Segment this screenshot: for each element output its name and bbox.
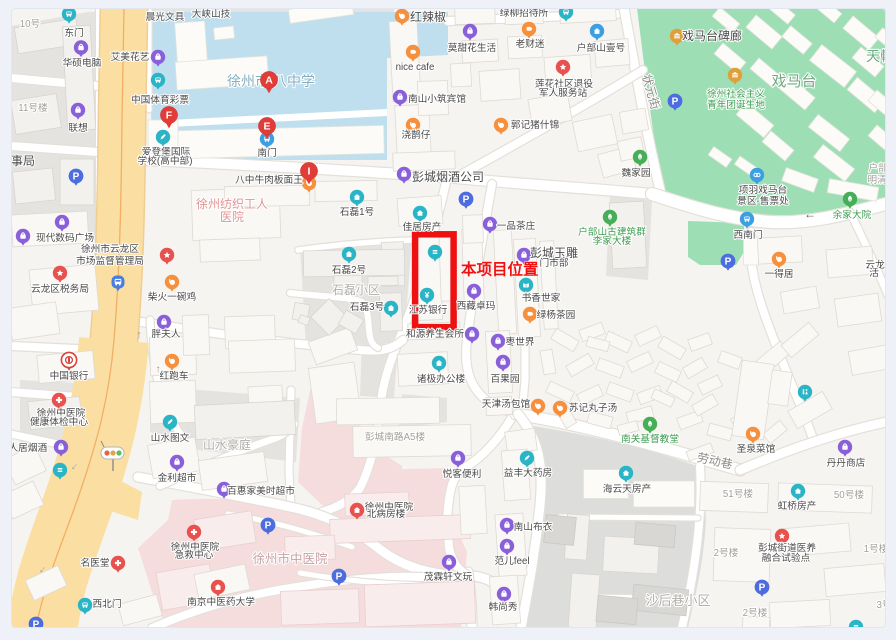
svg-text:¥: ¥ xyxy=(425,290,430,300)
svg-text:绿杨茶园: 绿杨茶园 xyxy=(537,308,576,321)
svg-text:P: P xyxy=(725,257,732,268)
svg-text:E: E xyxy=(263,121,270,133)
svg-text:1号楼: 1号楼 xyxy=(864,542,889,555)
svg-text:↑: ↑ xyxy=(136,329,142,341)
svg-text:石磊2号: 石磊2号 xyxy=(332,264,367,276)
svg-text:范儿feel: 范儿feel xyxy=(495,554,530,567)
svg-text:戏马台碑廊: 戏马台碑廊 xyxy=(682,28,742,43)
svg-text:←: ← xyxy=(804,207,816,221)
svg-text:一得居: 一得居 xyxy=(764,268,793,280)
svg-text:东门: 东门 xyxy=(64,26,83,39)
svg-text:P: P xyxy=(73,172,80,183)
svg-text:名医堂: 名医堂 xyxy=(80,556,109,569)
svg-text:石磊3号: 石磊3号 xyxy=(350,301,385,313)
svg-text:天津汤包馆: 天津汤包馆 xyxy=(482,397,531,410)
svg-text:军人服务站: 军人服务站 xyxy=(539,86,588,99)
svg-text:11号楼: 11号楼 xyxy=(18,101,48,114)
svg-text:西北门: 西北门 xyxy=(92,597,121,610)
svg-text:P: P xyxy=(265,521,272,532)
svg-text:A: A xyxy=(265,75,273,87)
svg-text:景区-售票处: 景区-售票处 xyxy=(737,194,789,207)
svg-text:本项目位置: 本项目位置 xyxy=(461,260,539,279)
svg-text:江苏银行: 江苏银行 xyxy=(409,303,448,316)
svg-text:徐州纺织工人: 徐州纺织工人 xyxy=(196,196,268,211)
svg-text:融合试验点: 融合试验点 xyxy=(762,551,811,564)
svg-text:石磊小区: 石磊小区 xyxy=(332,283,380,297)
svg-text:韩尚秀: 韩尚秀 xyxy=(488,600,517,613)
svg-text:医院: 医院 xyxy=(220,210,244,224)
svg-text:百果园: 百果园 xyxy=(490,373,519,385)
svg-text:沙后巷小区: 沙后巷小区 xyxy=(645,593,710,608)
svg-text:悦客便利: 悦客便利 xyxy=(443,467,482,480)
svg-text:中国体育彩票: 中国体育彩票 xyxy=(131,93,189,106)
svg-text:胖夫人: 胖夫人 xyxy=(151,328,180,340)
svg-text:现代数码广场: 现代数码广场 xyxy=(36,231,94,244)
svg-text:户部山壹号: 户部山壹号 xyxy=(577,41,626,54)
svg-text:青年团诞生地: 青年团诞生地 xyxy=(707,98,765,111)
svg-text:活: 活 xyxy=(869,267,879,279)
svg-text:南山布衣: 南山布衣 xyxy=(514,520,553,533)
svg-text:云龙区税务局: 云龙区税务局 xyxy=(31,282,89,295)
svg-text:莫甜花生活: 莫甜花生活 xyxy=(448,41,497,54)
svg-text:金利超市: 金利超市 xyxy=(158,471,197,484)
svg-text:余家大院: 余家大院 xyxy=(833,208,872,221)
svg-text:50号楼: 50号楼 xyxy=(834,488,864,501)
svg-text:山水图文: 山水图文 xyxy=(151,431,190,444)
svg-text:石磊1号: 石磊1号 xyxy=(340,206,375,218)
svg-text:虹桥房产: 虹桥房产 xyxy=(778,499,817,512)
svg-text:红跑车: 红跑车 xyxy=(159,369,188,382)
svg-text:和源养生会所: 和源养生会所 xyxy=(406,327,464,340)
svg-text:10号: 10号 xyxy=(20,18,41,30)
svg-text:P: P xyxy=(336,572,343,583)
svg-text:南关基督教堂: 南关基督教堂 xyxy=(621,432,679,445)
svg-text:51号楼: 51号楼 xyxy=(723,487,753,500)
svg-text:市场监督管理局: 市场监督管理局 xyxy=(76,254,144,267)
svg-text:艾美花艺: 艾美花艺 xyxy=(111,50,150,63)
svg-text:浇鹊仔: 浇鹊仔 xyxy=(401,128,430,141)
svg-text:明清: 明清 xyxy=(867,173,887,186)
svg-text:2号楼: 2号楼 xyxy=(714,546,739,559)
svg-text:nice cafe: nice cafe xyxy=(396,62,435,73)
svg-text:郭记猪什锦: 郭记猪什锦 xyxy=(511,118,559,131)
svg-text:彭城南路A5楼: 彭城南路A5楼 xyxy=(365,430,426,443)
svg-text:徐州市中医院: 徐州市中医院 xyxy=(252,551,328,566)
svg-text:枣世界: 枣世界 xyxy=(505,336,534,348)
svg-text:李家大楼: 李家大楼 xyxy=(593,234,632,247)
svg-text:佳居房产: 佳居房产 xyxy=(403,220,442,233)
svg-text:P: P xyxy=(672,97,679,108)
svg-text:门市部: 门市部 xyxy=(539,256,568,269)
svg-text:北病房楼: 北病房楼 xyxy=(367,507,406,520)
svg-text:彭城烟酒公司: 彭城烟酒公司 xyxy=(412,170,484,184)
svg-text:徐州市云龙区: 徐州市云龙区 xyxy=(81,242,139,255)
svg-text:圣泉菜馆: 圣泉菜馆 xyxy=(737,442,776,455)
svg-text:诸极办公楼: 诸极办公楼 xyxy=(417,372,466,385)
svg-text:中国银行: 中国银行 xyxy=(50,369,89,382)
svg-text:百惠家美时超市: 百惠家美时超市 xyxy=(227,484,295,497)
svg-text:丹丹商店: 丹丹商店 xyxy=(827,456,866,469)
svg-text:西藏卓玛: 西藏卓玛 xyxy=(457,300,496,312)
svg-text:健康体检中心: 健康体检中心 xyxy=(30,415,88,428)
svg-text:徐州社会主义: 徐州社会主义 xyxy=(707,87,765,100)
svg-text:急救中心: 急救中心 xyxy=(175,548,214,561)
svg-text:老财迷: 老财迷 xyxy=(515,37,544,50)
svg-text:I: I xyxy=(308,166,311,178)
svg-text:益丰大药房: 益丰大药房 xyxy=(504,466,552,479)
svg-text:南京中医药大学: 南京中医药大学 xyxy=(187,595,255,608)
svg-text:联想: 联想 xyxy=(68,121,88,134)
svg-text:F: F xyxy=(166,110,173,122)
svg-text:柴火一碗鸡: 柴火一碗鸡 xyxy=(148,290,197,303)
svg-text:苏记丸子汤: 苏记丸子汤 xyxy=(569,401,618,414)
svg-text:南门: 南门 xyxy=(257,146,276,159)
svg-text:八中牛肉板面王: 八中牛肉板面王 xyxy=(235,173,303,186)
svg-text:八中学: 八中学 xyxy=(273,73,315,89)
svg-text:P: P xyxy=(759,583,766,594)
svg-text:项羽戏马台: 项羽戏马台 xyxy=(739,183,787,196)
svg-text:海云天房产: 海云天房产 xyxy=(603,482,651,495)
svg-text:山水豪庭: 山水豪庭 xyxy=(203,437,251,452)
svg-text:P: P xyxy=(463,195,470,206)
svg-text:晨光文具: 晨光文具 xyxy=(146,10,185,23)
svg-text:华硕电脑: 华硕电脑 xyxy=(63,56,102,69)
svg-text:2号楼: 2号楼 xyxy=(743,606,768,619)
svg-text:一品茶庄: 一品茶庄 xyxy=(497,219,536,232)
svg-text:书香世家: 书香世家 xyxy=(522,291,561,304)
svg-text:红辣椒: 红辣椒 xyxy=(410,9,446,24)
svg-text:南山小筑宾馆: 南山小筑宾馆 xyxy=(408,92,466,105)
svg-text:魏家园: 魏家园 xyxy=(621,166,650,179)
svg-text:学校(高中部): 学校(高中部) xyxy=(138,154,193,167)
svg-text:戏马台: 戏马台 xyxy=(771,73,816,90)
svg-text:茂霖轩文玩: 茂霖轩文玩 xyxy=(424,570,473,583)
svg-text:西南门: 西南门 xyxy=(733,228,762,241)
